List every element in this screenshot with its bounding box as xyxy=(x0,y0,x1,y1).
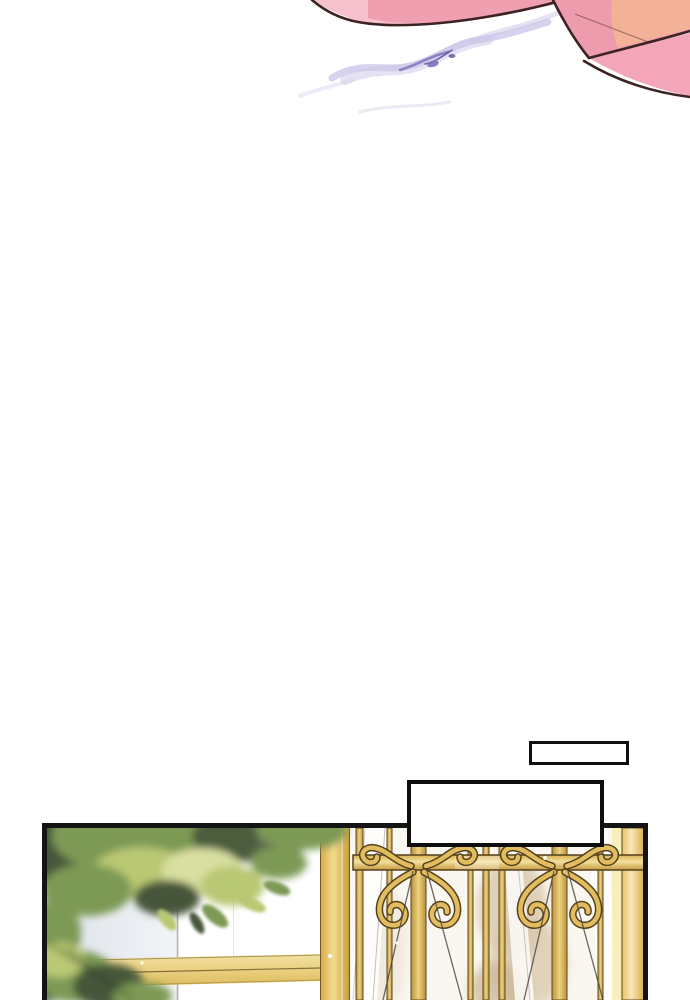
speech-box-small-text xyxy=(532,744,626,762)
gate-right-pillar xyxy=(622,828,643,1000)
ribbon-smoke-scene xyxy=(0,0,690,130)
comic-page xyxy=(0,0,690,1000)
golden-post xyxy=(320,828,350,1000)
comic-panel xyxy=(42,823,648,1000)
speech-box-large-text xyxy=(411,784,600,843)
garden-scene xyxy=(47,828,643,1000)
speech-box-large xyxy=(407,780,604,847)
pink-ribbon-bow xyxy=(312,0,690,97)
speech-box-small xyxy=(529,741,629,765)
